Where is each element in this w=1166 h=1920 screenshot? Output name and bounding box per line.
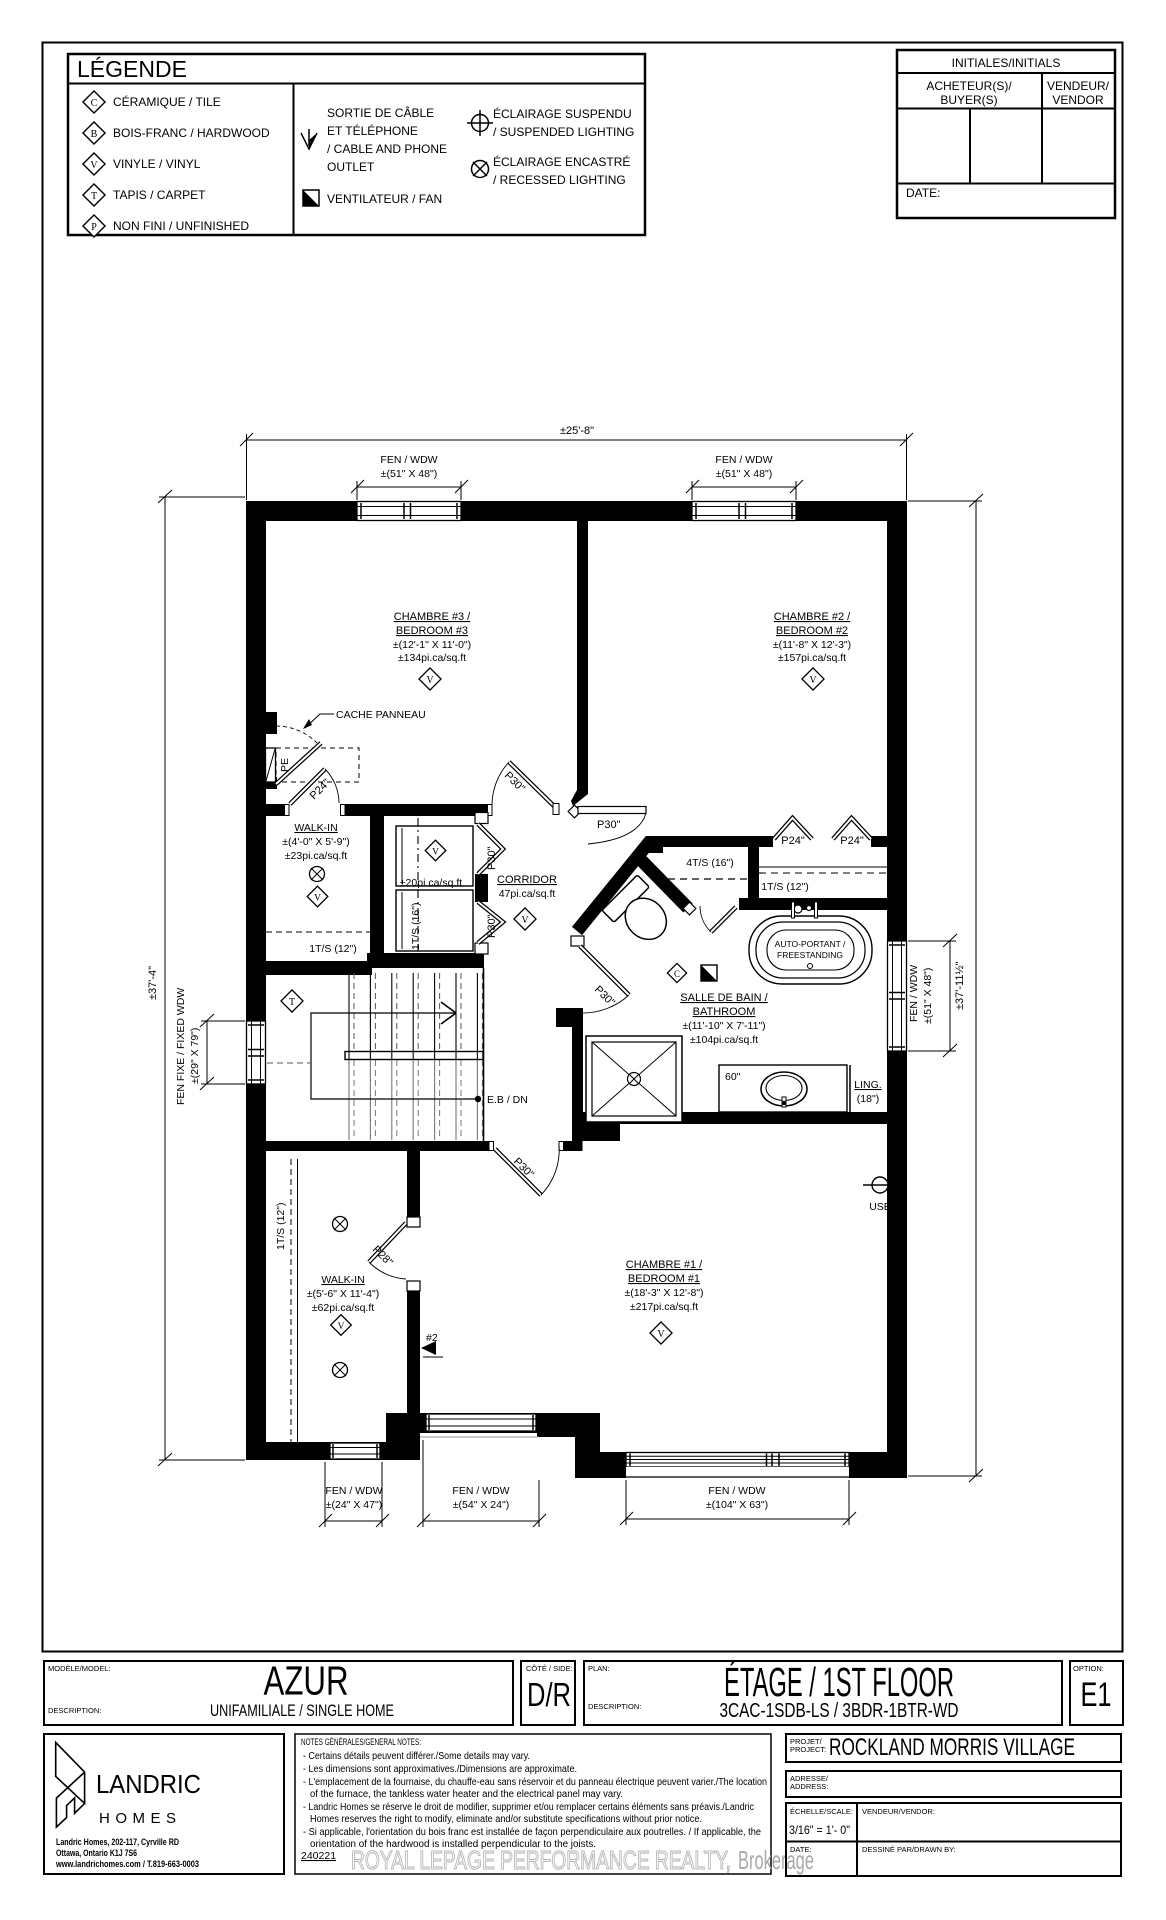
svg-text:DATE:: DATE: <box>790 1845 812 1854</box>
svg-text:V: V <box>314 894 321 904</box>
svg-text:SALLE DE BAIN /: SALLE DE BAIN / <box>680 992 768 1004</box>
svg-text:±(54" X 24"): ±(54" X 24") <box>453 1499 509 1511</box>
svg-text:P30": P30" <box>597 819 621 831</box>
svg-text:LÉGENDE: LÉGENDE <box>77 56 187 82</box>
svg-text:1T/S (12"): 1T/S (12") <box>309 943 357 955</box>
svg-text:FEN / WDW: FEN / WDW <box>380 454 437 466</box>
svg-text:PROJECT:: PROJECT: <box>790 1745 826 1754</box>
svg-text:FEN FIXE / FIXED WDW: FEN FIXE / FIXED WDW <box>175 988 187 1105</box>
svg-text:E1: E1 <box>1081 1676 1112 1714</box>
svg-text:TAPIS / CARPET: TAPIS / CARPET <box>113 188 206 202</box>
svg-text:OUTLET: OUTLET <box>327 160 375 174</box>
svg-text:V: V <box>90 160 98 171</box>
svg-text:WALK-IN: WALK-IN <box>321 1274 364 1286</box>
svg-text:BEDROOM #3: BEDROOM #3 <box>396 625 468 637</box>
svg-text:BOIS-FRANC / HARDWOOD: BOIS-FRANC / HARDWOOD <box>113 126 270 140</box>
svg-text:±(12'-1" X 11'-0"): ±(12'-1" X 11'-0") <box>393 639 471 651</box>
svg-text:±25'-8": ±25'-8" <box>560 425 594 437</box>
svg-text:FEN / WDW: FEN / WDW <box>708 1485 765 1497</box>
svg-text:ÉTAGE / 1ST FLOOR: ÉTAGE / 1ST FLOOR <box>724 1659 954 1705</box>
svg-text:V: V <box>521 915 529 926</box>
svg-text:47pi.ca/sq.ft: 47pi.ca/sq.ft <box>499 888 556 900</box>
svg-text:±(51" X 48"): ±(51" X 48") <box>716 468 772 480</box>
svg-text:ROCKLAND MORRIS VILLAGE: ROCKLAND MORRIS VILLAGE <box>829 1734 1075 1761</box>
svg-text:T: T <box>91 191 97 202</box>
svg-text:1T/S (12"): 1T/S (12") <box>275 1203 287 1251</box>
svg-text:- Certains détails peuvent di: - Certains détails peuvent différer./Som… <box>303 1751 530 1762</box>
svg-text:V: V <box>432 848 439 858</box>
svg-text:1T/S (16"): 1T/S (16") <box>410 903 422 951</box>
svg-text:LING.: LING. <box>854 1079 881 1091</box>
svg-text:VENDEUR/: VENDEUR/ <box>1047 79 1110 93</box>
svg-text:BEDROOM #2: BEDROOM #2 <box>776 625 848 637</box>
svg-text:CÔTÉ / SIDE:: CÔTÉ / SIDE: <box>526 1664 573 1673</box>
svg-text:SORTIE DE CÂBLE: SORTIE DE CÂBLE <box>327 105 434 120</box>
svg-text:/ RECESSED LIGHTING: / RECESSED LIGHTING <box>493 173 626 187</box>
svg-text:HOMES: HOMES <box>99 1810 182 1827</box>
svg-text:NON FINI / UNFINISHED: NON FINI / UNFINISHED <box>113 219 249 233</box>
svg-text:CHAMBRE #2 /: CHAMBRE #2 / <box>774 611 851 623</box>
svg-text:NOTES GÉNÉRALES/GENERAL NOTES:: NOTES GÉNÉRALES/GENERAL NOTES: <box>301 1737 421 1747</box>
svg-text:±(5'-6" X 11'-4"): ±(5'-6" X 11'-4") <box>307 1288 379 1300</box>
svg-text:±(24" X 47"): ±(24" X 47") <box>326 1499 382 1511</box>
svg-text:±(18'-3" X 12'-8"): ±(18'-3" X 12'-8") <box>624 1287 703 1299</box>
svg-text:V: V <box>338 1322 345 1332</box>
svg-text:1T/S (12"): 1T/S (12") <box>761 881 809 893</box>
svg-text:V: V <box>657 1329 665 1340</box>
svg-text:ACHETEUR(S)/: ACHETEUR(S)/ <box>926 79 1012 93</box>
svg-text:- Les dimensions sont approxi: - Les dimensions sont approximatives./Di… <box>303 1764 577 1775</box>
svg-text:AUTO-PORTANT /: AUTO-PORTANT / <box>775 939 846 949</box>
svg-text:OPTION:: OPTION: <box>1073 1664 1104 1673</box>
svg-text:P30": P30" <box>486 846 498 870</box>
svg-text:DESCRIPTION:: DESCRIPTION: <box>588 1702 641 1711</box>
svg-text:BUYER(S): BUYER(S) <box>940 93 997 107</box>
svg-text:±(11'-8" X 12'-3"): ±(11'-8" X 12'-3") <box>773 639 851 651</box>
svg-text:P: P <box>91 222 97 233</box>
svg-text:V: V <box>809 675 817 686</box>
svg-text:#2: #2 <box>426 1332 438 1344</box>
svg-text:MODÈLE/MODEL:: MODÈLE/MODEL: <box>48 1664 111 1673</box>
svg-text:of the furnace, the tankless w: of the furnace, the tankless water heate… <box>310 1789 623 1800</box>
svg-text:CACHE PANNEAU: CACHE PANNEAU <box>336 709 426 721</box>
svg-text:±157pi.ca/sq.ft: ±157pi.ca/sq.ft <box>778 652 846 664</box>
svg-text:±(29" X 79"): ±(29" X 79") <box>189 1028 201 1084</box>
svg-text:- Si applicable, l'orientatio: - Si applicable, l'orientation du bois f… <box>303 1827 761 1838</box>
svg-text:Ottawa, Ontario K1J 7S6: Ottawa, Ontario K1J 7S6 <box>56 1848 137 1859</box>
svg-text:±37'-4": ±37'-4" <box>147 966 159 1000</box>
svg-text:LANDRIC: LANDRIC <box>96 1770 201 1799</box>
svg-text:DESCRIPTION:: DESCRIPTION: <box>48 1706 101 1715</box>
svg-text:FEN / WDW: FEN / WDW <box>715 454 772 466</box>
svg-text:±(4'-0" X 5'-9"): ±(4'-0" X 5'-9") <box>282 836 349 848</box>
svg-text:FREESTANDING: FREESTANDING <box>777 950 843 960</box>
svg-text:P24": P24" <box>840 835 864 847</box>
svg-text:VENDOR: VENDOR <box>1052 93 1104 107</box>
svg-text:C: C <box>91 98 98 109</box>
svg-text:Homes reserves the right to mo: Homes reserves the right to modify, elim… <box>310 1814 702 1825</box>
svg-text:±23pi.ca/sq.ft: ±23pi.ca/sq.ft <box>285 850 347 862</box>
svg-text:WALK-IN: WALK-IN <box>294 822 337 834</box>
svg-text:ET TÉLÉPHONE: ET TÉLÉPHONE <box>327 123 418 138</box>
svg-text:±217pi.ca/sq.ft: ±217pi.ca/sq.ft <box>630 1301 698 1313</box>
svg-text:T: T <box>289 997 295 1008</box>
svg-text:- Landric Homes se réserve le: - Landric Homes se réserve le droit de m… <box>303 1802 754 1813</box>
svg-text:±134pi.ca/sq.ft: ±134pi.ca/sq.ft <box>398 652 466 664</box>
svg-text:C: C <box>674 969 680 979</box>
svg-text:DESSINÉ PAR/DRAWN BY:: DESSINÉ PAR/DRAWN BY: <box>862 1845 956 1854</box>
svg-text:V: V <box>426 675 434 686</box>
svg-text:/ SUSPENDED LIGHTING: / SUSPENDED LIGHTING <box>493 125 634 139</box>
svg-text:±(51" X 48"): ±(51" X 48") <box>381 468 437 480</box>
svg-text:P24": P24" <box>781 835 805 847</box>
svg-text:PLAN:: PLAN: <box>588 1664 610 1673</box>
svg-text:60": 60" <box>725 1071 741 1083</box>
svg-text:VENDEUR/VENDOR:: VENDEUR/VENDOR: <box>862 1807 935 1816</box>
svg-text:±(11'-10" X 7'-11"): ±(11'-10" X 7'-11") <box>682 1020 765 1032</box>
svg-text:VENTILATEUR / FAN: VENTILATEUR / FAN <box>327 192 442 206</box>
svg-text:www.landrichomes.com / T.819-6: www.landrichomes.com / T.819-663-0003 <box>55 1859 199 1870</box>
svg-text:±62pi.ca/sq.ft: ±62pi.ca/sq.ft <box>312 1302 374 1314</box>
svg-text:INITIALES/INITIALS: INITIALES/INITIALS <box>952 56 1061 70</box>
svg-text:ÉCHELLE/SCALE:: ÉCHELLE/SCALE: <box>790 1807 853 1816</box>
svg-text:CHAMBRE #3 /: CHAMBRE #3 / <box>394 611 471 623</box>
svg-text:VINYLE / VINYL: VINYLE / VINYL <box>113 157 201 171</box>
svg-text:/ CABLE AND PHONE: / CABLE AND PHONE <box>327 142 447 156</box>
svg-text:AZUR: AZUR <box>264 1658 349 1704</box>
svg-text:FEN / WDW: FEN / WDW <box>325 1485 382 1497</box>
svg-text:±20pi.ca/sq.ft: ±20pi.ca/sq.ft <box>400 877 462 889</box>
svg-text:3CAC-1SDB-LS / 3BDR-1BTR-WD: 3CAC-1SDB-LS / 3BDR-1BTR-WD <box>720 1700 959 1722</box>
svg-text:USB: USB <box>869 1201 891 1213</box>
svg-text:FEN / WDW: FEN / WDW <box>908 965 920 1022</box>
svg-text:UNIFAMILIALE / SINGLE HOME: UNIFAMILIALE / SINGLE HOME <box>210 1701 394 1720</box>
svg-text:4T/S (16"): 4T/S (16") <box>686 857 734 869</box>
svg-text:CÉRAMIQUE / TILE: CÉRAMIQUE / TILE <box>113 94 221 109</box>
svg-text:FEN / WDW: FEN / WDW <box>452 1485 509 1497</box>
svg-text:±(104" X 63"): ±(104" X 63") <box>706 1499 768 1511</box>
svg-text:ÉCLAIRAGE SUSPENDU: ÉCLAIRAGE SUSPENDU <box>493 106 632 121</box>
svg-text:±(51" X 48"): ±(51" X 48") <box>922 968 934 1024</box>
svg-text:Landric Homes, 202-117, Cyrvil: Landric Homes, 202-117, Cyrville RD <box>56 1837 179 1848</box>
svg-text:(18"): (18") <box>857 1093 879 1105</box>
svg-text:±37'-11½": ±37'-11½" <box>954 961 966 1010</box>
svg-text:±104pi.ca/sq.ft: ±104pi.ca/sq.ft <box>690 1034 758 1046</box>
svg-text:E.B / DN: E.B / DN <box>487 1094 528 1106</box>
svg-text:DATE:: DATE: <box>906 186 940 200</box>
svg-text:240221: 240221 <box>301 1850 336 1862</box>
svg-text:ROYAL LEPAGE PERFORMANCE REALT: ROYAL LEPAGE PERFORMANCE REALTY, <box>351 1845 731 1875</box>
svg-text:P30": P30" <box>486 914 498 938</box>
svg-text:ÉCLAIRAGE ENCASTRÉ: ÉCLAIRAGE ENCASTRÉ <box>493 154 630 169</box>
svg-text:D/R: D/R <box>527 1676 571 1713</box>
svg-text:CORRIDOR: CORRIDOR <box>497 874 557 886</box>
svg-text:CHAMBRE #1 /: CHAMBRE #1 / <box>626 1259 703 1271</box>
svg-text:3/16" = 1'- 0": 3/16" = 1'- 0" <box>789 1823 850 1837</box>
svg-text:ADDRESS:: ADDRESS: <box>790 1782 828 1791</box>
svg-text:BEDROOM #1: BEDROOM #1 <box>628 1273 700 1285</box>
svg-text:BATHROOM: BATHROOM <box>693 1006 756 1018</box>
svg-text:- L'emplacement de la fournai: - L'emplacement de la fournaise, du chau… <box>303 1777 767 1788</box>
svg-text:B: B <box>91 129 98 140</box>
